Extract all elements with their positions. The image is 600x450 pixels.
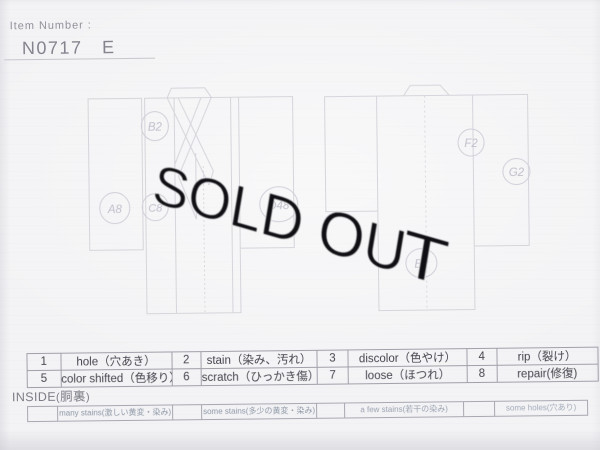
svg-text:B2: B2	[148, 122, 163, 134]
svg-text:G2: G2	[509, 167, 525, 179]
svg-text:A8: A8	[107, 204, 123, 216]
svg-text:F2: F2	[464, 138, 478, 150]
